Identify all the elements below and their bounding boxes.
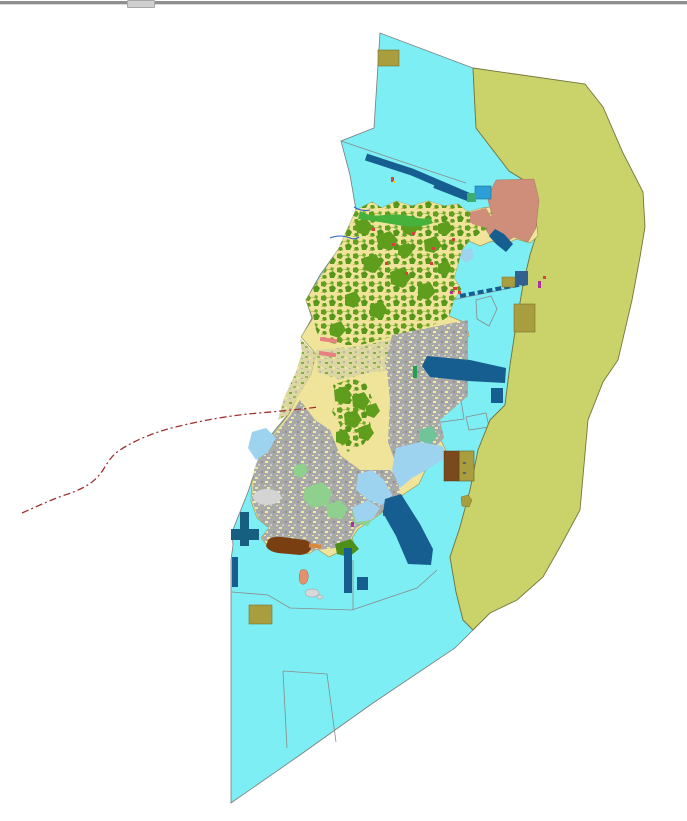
slate-square [515,271,528,285]
red-dot [412,232,415,235]
khaki-plot-north [378,50,399,66]
magenta-mark [538,281,541,288]
red-dot [453,287,457,290]
red-dot [405,272,408,275]
west-edge-bar [232,557,238,587]
magenta-mark [351,522,354,527]
salmon-islet [299,570,308,585]
khaki-plot-combo [459,451,474,481]
bright-green-sliver [413,366,417,378]
red-dot [385,262,388,265]
red-dot [432,247,435,250]
quay-block [491,388,503,403]
screenshot-stage [0,0,687,821]
teal-square [467,193,476,202]
yellow-buoy-dot [393,181,395,183]
plot-tick [463,472,466,474]
salmon-parcel [470,215,482,223]
red-dot [543,276,546,279]
plot-tick [463,462,466,464]
red-dot [372,228,375,231]
red-dot [458,291,461,294]
red-dot [452,238,455,241]
magenta-mark [450,291,453,294]
red-dot [392,243,395,246]
jetty-cross [231,529,259,540]
map-wrap [0,0,687,821]
map-canvas[interactable] [0,0,687,821]
salmon-parcel [505,230,515,237]
khaki-plot-south [249,605,272,624]
south-square [357,577,368,590]
south-strip [344,548,352,593]
khaki-plot-small [502,277,515,287]
khaki-plot-east [514,304,535,332]
red-dot [430,262,433,265]
mudflat-gray [253,489,281,505]
islet [317,595,323,599]
islet [305,589,319,597]
blue-plot [475,186,491,199]
brown-plot-combo [444,451,459,481]
